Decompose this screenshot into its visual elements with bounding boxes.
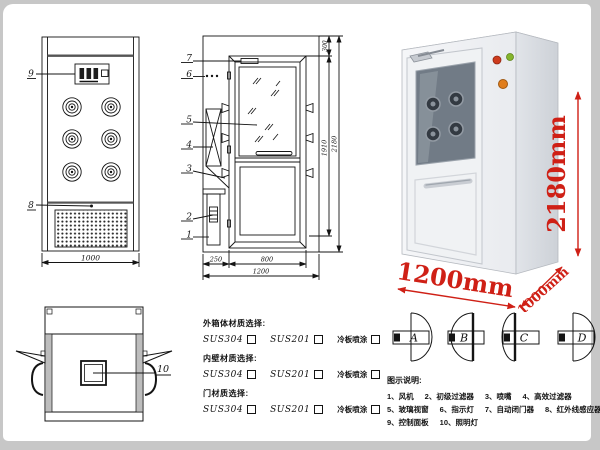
material-section-inner-wall: 内壁材质选择: SUS304 SUS201 冷板喷涂 [201, 353, 383, 380]
material-title: 内壁材质选择: [203, 353, 383, 364]
callout-2: 2 [185, 213, 192, 223]
checkbox[interactable] [314, 405, 323, 414]
legend-item: 5、玻璃视窗 [387, 405, 429, 414]
legend-item: 8、红外线感应器 [545, 405, 600, 414]
legend-row: 5、玻璃视窗6、指示灯7、自动闭门器8、红外线感应器 [387, 403, 593, 416]
door-handle [256, 152, 292, 156]
checkbox[interactable] [371, 335, 380, 344]
leader-8 [36, 205, 92, 206]
air-shower-photo: 2180mm 1200mm 1000mm [388, 12, 593, 312]
front-view-drawing: 9 8 1000 [23, 28, 173, 278]
door-swing-option-c: C [499, 310, 543, 364]
door-swing-option-d: D [554, 310, 598, 364]
material-title: 外箱体材质选择: [203, 318, 383, 329]
dim-1200: 1200 [253, 268, 270, 276]
glass-window [239, 67, 296, 156]
callout-leaders [181, 61, 257, 239]
option-label: SUS201 [270, 405, 310, 415]
door-style-letter: A [409, 332, 418, 345]
material-selection: 外箱体材质选择: SUS304 SUS201 冷板喷涂 内壁材质选择: SUS3… [201, 318, 383, 423]
material-title: 门材质选择: [203, 388, 383, 399]
option-label: 冷板喷涂 [337, 334, 367, 345]
door-style-letter: C [520, 332, 529, 345]
checkbox[interactable] [371, 405, 380, 414]
checkbox[interactable] [314, 335, 323, 344]
checkbox[interactable] [247, 405, 256, 414]
legend-item: 3、喷嘴 [485, 392, 512, 401]
legend-row: 1、风机2、初级过滤器3、喷嘴4、高效过滤器 [387, 390, 593, 403]
callout-1: 1 [186, 231, 192, 241]
front-width-dim: 1000 [81, 254, 100, 263]
legend: 图示说明: 1、风机2、初级过滤器3、喷嘴4、高效过滤器 5、玻璃视窗6、指示灯… [387, 375, 593, 429]
legend-row: 9、控制面板10、照明灯 [387, 416, 593, 429]
legend-item: 2、初级过滤器 [425, 392, 474, 401]
checkbox[interactable] [247, 335, 256, 344]
option-label: 冷板喷涂 [337, 369, 367, 380]
option-label: SUS304 [203, 335, 243, 345]
checkbox[interactable] [247, 370, 256, 379]
option-label: 冷板喷涂 [337, 404, 367, 415]
callout-7: 7 [186, 54, 192, 64]
top-view-drawing: 10 [13, 297, 183, 442]
orange-button [499, 80, 508, 89]
control-panel [75, 64, 109, 84]
cabinet-door [407, 48, 482, 264]
side-view-drawing: 7 6 5 4 3 2 1 300 1910 2180 250 800 1200 [179, 28, 347, 284]
option-label: SUS201 [270, 335, 310, 345]
option-label: SUS201 [270, 370, 310, 380]
option-label: SUS304 [203, 405, 243, 415]
top-cabinet-outline [45, 307, 143, 421]
glass-reflections [248, 78, 280, 142]
front-cabinet-outline [27, 37, 139, 267]
legend-item: 10、照明灯 [440, 418, 478, 427]
callout-9: 9 [28, 70, 34, 80]
legend-item: 6、指示灯 [440, 405, 474, 414]
cabinet-body [402, 32, 558, 274]
callout-10: 10 [157, 364, 169, 375]
red-indicator [493, 56, 501, 64]
legend-item: 4、高效过滤器 [523, 392, 572, 401]
nozzles [63, 98, 120, 181]
dim-1910: 1910 [321, 140, 329, 157]
door-swing-option-a: A [389, 310, 433, 364]
air-return-grille [55, 210, 127, 247]
callout-3: 3 [186, 165, 192, 175]
door-swing-options: A B C [389, 310, 598, 364]
green-indicator [507, 54, 514, 61]
side-nozzles [222, 104, 313, 178]
callout-6: 6 [186, 70, 192, 80]
indicator-lights [206, 75, 218, 77]
legend-item: 7、自动闭门器 [485, 405, 534, 414]
photo-dim-height: 2180mm [542, 115, 571, 233]
door-swing-option-b: B [444, 310, 488, 364]
callout-4: 4 [185, 141, 192, 151]
spec-sheet-page: 9 8 1000 [3, 4, 591, 441]
dim-250: 250 [209, 256, 222, 264]
width-dimensions [203, 250, 319, 280]
legend-title: 图示说明: [387, 375, 593, 386]
checkbox[interactable] [314, 370, 323, 379]
callout-8: 8 [28, 201, 34, 211]
checkbox[interactable] [371, 370, 380, 379]
dim-2180: 2180 [331, 136, 339, 154]
callout-5: 5 [186, 116, 192, 126]
option-label: SUS304 [203, 370, 243, 380]
door-style-letter: D [577, 332, 587, 345]
legend-item: 1、风机 [387, 392, 414, 401]
material-section-door: 门材质选择: SUS304 SUS201 冷板喷涂 [201, 388, 383, 415]
dim-300: 300 [322, 40, 329, 52]
door-style-letter: B [459, 332, 468, 345]
material-section-outer-box: 外箱体材质选择: SUS304 SUS201 冷板喷涂 [201, 318, 383, 345]
legend-item: 9、控制面板 [387, 418, 429, 427]
door [228, 56, 307, 248]
dim-800: 800 [261, 256, 273, 264]
door-swing-left [16, 351, 45, 395]
